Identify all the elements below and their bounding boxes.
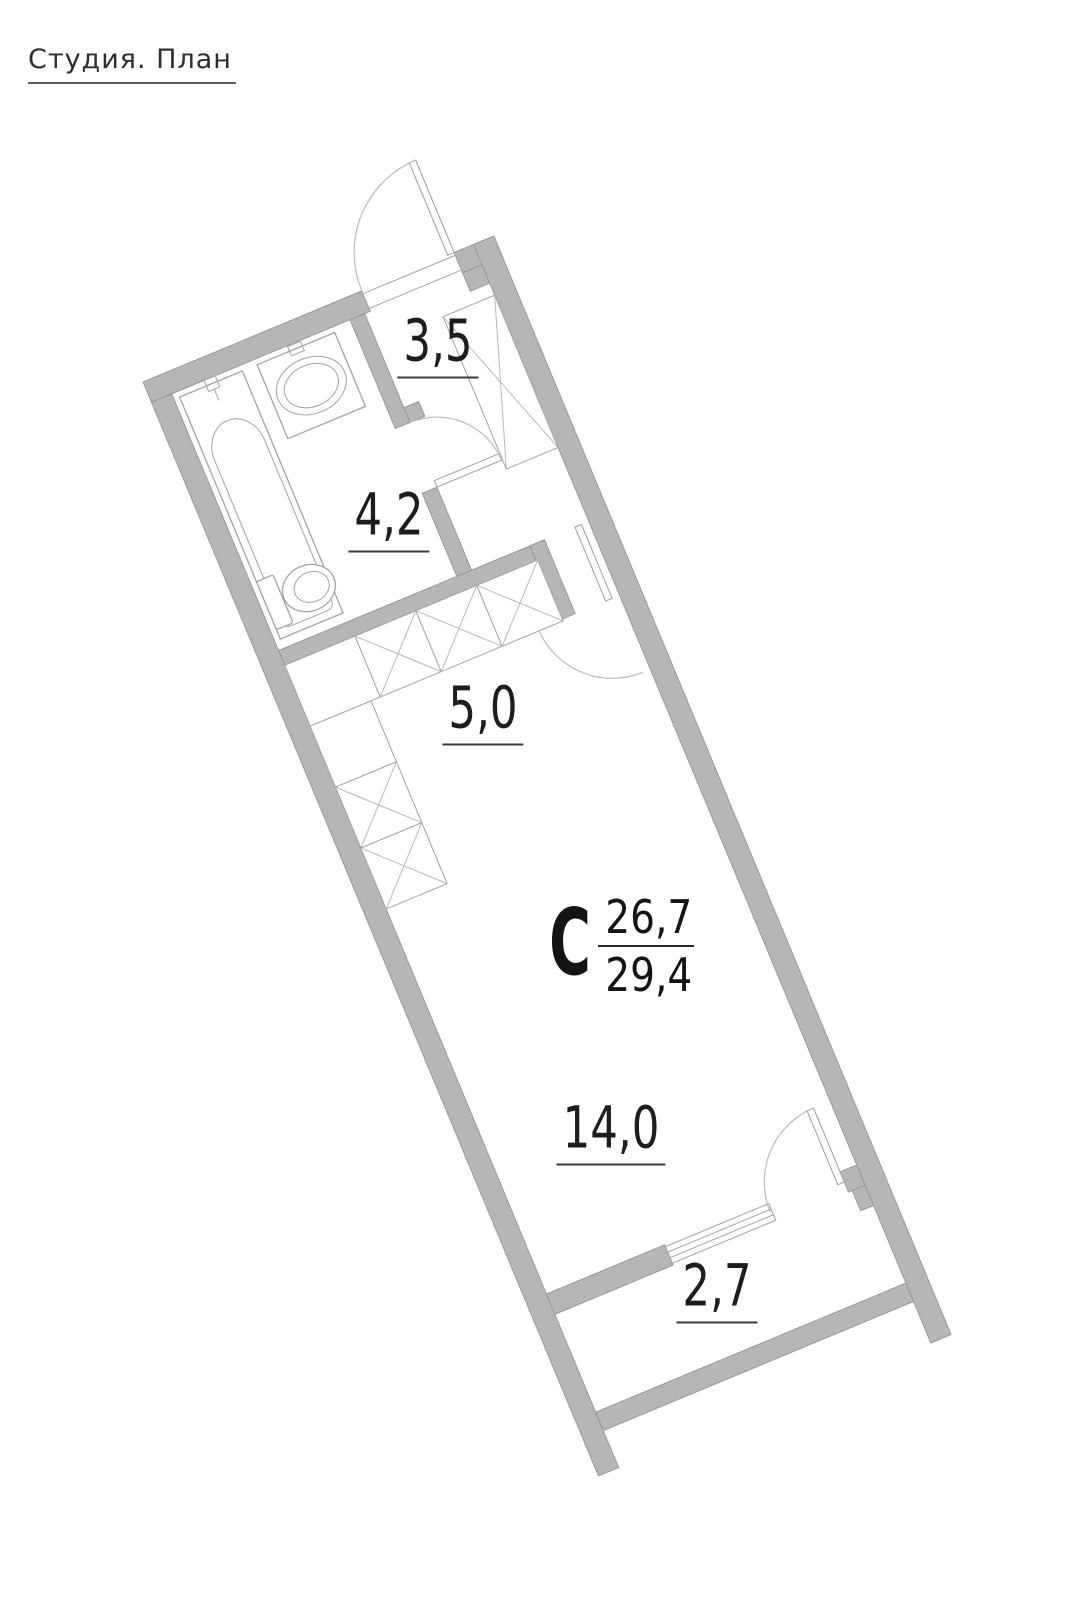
- entrance-threshold-outer: [363, 255, 455, 293]
- area-fraction-line: [598, 945, 694, 947]
- room-area-label-living-room: 14,0: [557, 1099, 666, 1166]
- rotated-plan: [105, 144, 952, 1481]
- unit-area-block: 26,7 29,4: [598, 894, 694, 998]
- entrance-door-arc: [323, 160, 454, 291]
- floor-plan-page: Студия. План: [0, 0, 1090, 1600]
- unit-type-letter: С: [549, 897, 591, 989]
- bathroom-door-leaf: [434, 454, 501, 487]
- window-glass-line: [668, 1209, 771, 1252]
- unit-living-area: 26,7: [605, 894, 687, 940]
- unit-total-area: 29,4: [605, 952, 687, 998]
- wall-right: [474, 236, 952, 1343]
- entrance-door-leaf: [409, 160, 454, 255]
- balcony-door: [740, 1108, 845, 1213]
- entrance-door: [323, 160, 461, 308]
- room-area-label-balcony: 2,7: [676, 1257, 757, 1324]
- room-area-label-kitchen: 5,0: [442, 679, 523, 746]
- room-area-label-hallway: 3,5: [397, 312, 478, 379]
- balcony-partition-wall: [546, 1245, 673, 1315]
- entrance-threshold-inner: [369, 270, 461, 308]
- floor-plan-drawing: [0, 0, 1090, 1600]
- room-area-label-bathroom: 4,2: [348, 486, 429, 553]
